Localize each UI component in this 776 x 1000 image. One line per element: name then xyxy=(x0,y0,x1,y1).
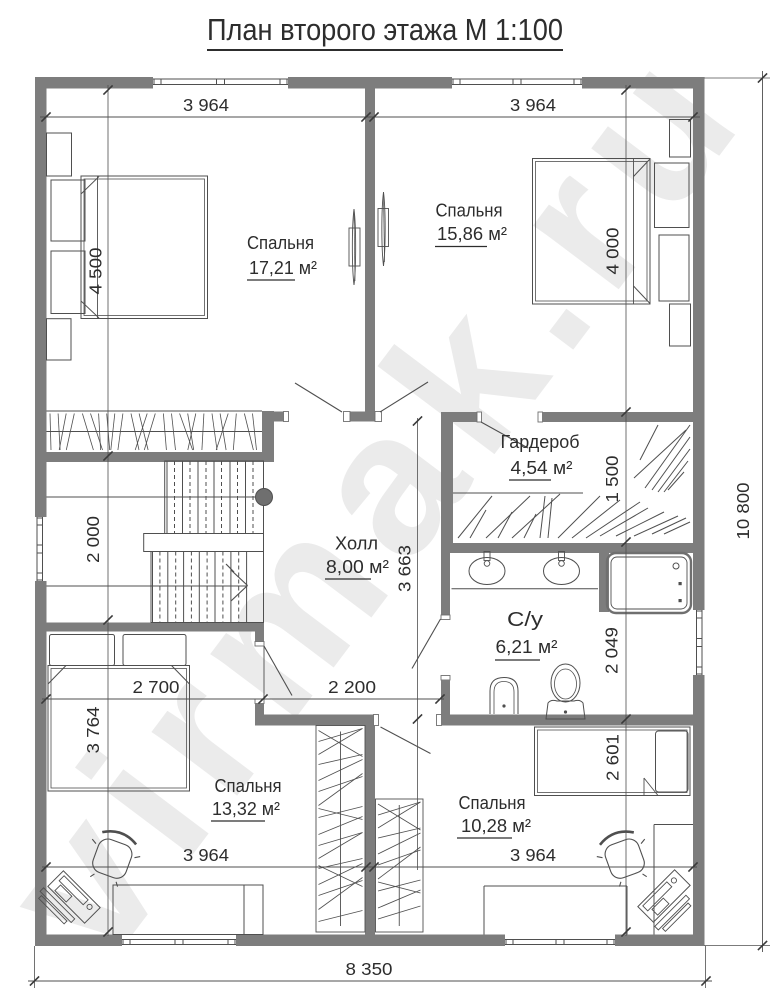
svg-text:8 350: 8 350 xyxy=(346,959,393,979)
svg-text:3 964: 3 964 xyxy=(183,95,229,115)
svg-text:3 964: 3 964 xyxy=(510,845,556,865)
svg-text:2 200: 2 200 xyxy=(328,677,376,697)
svg-text:С/у: С/у xyxy=(507,609,543,631)
svg-text:2 601: 2 601 xyxy=(603,734,623,781)
svg-text:3 964: 3 964 xyxy=(510,95,556,115)
svg-text:2 049: 2 049 xyxy=(602,627,622,674)
svg-text:3 964: 3 964 xyxy=(183,845,229,865)
svg-text:4 500: 4 500 xyxy=(86,247,106,294)
svg-text:План второго этажа М 1:100: План второго этажа М 1:100 xyxy=(207,12,563,47)
svg-text:2 700: 2 700 xyxy=(133,677,180,697)
svg-text:Холл: Холл xyxy=(335,533,378,554)
svg-text:6,21 м²: 6,21 м² xyxy=(496,636,558,657)
svg-text:15,86 м²: 15,86 м² xyxy=(437,223,507,244)
svg-text:Гардероб: Гардероб xyxy=(501,431,580,452)
svg-text:13,32 м²: 13,32 м² xyxy=(212,798,280,819)
svg-text:Спальня: Спальня xyxy=(459,792,526,813)
svg-text:2 000: 2 000 xyxy=(83,516,103,563)
svg-text:Спальня: Спальня xyxy=(247,232,314,253)
svg-text:3 663: 3 663 xyxy=(395,545,415,592)
svg-text:Спальня: Спальня xyxy=(215,775,282,796)
svg-text:3 764: 3 764 xyxy=(83,706,103,753)
svg-text:8,00 м²: 8,00 м² xyxy=(326,556,389,577)
svg-text:4 000: 4 000 xyxy=(603,227,623,274)
svg-text:4,54 м²: 4,54 м² xyxy=(511,457,573,478)
svg-text:Спальня: Спальня xyxy=(436,200,503,221)
svg-text:10,28 м²: 10,28 м² xyxy=(461,815,531,836)
svg-text:10 800: 10 800 xyxy=(733,482,753,539)
svg-text:1 500: 1 500 xyxy=(602,455,622,502)
svg-text:17,21 м²: 17,21 м² xyxy=(249,257,317,278)
